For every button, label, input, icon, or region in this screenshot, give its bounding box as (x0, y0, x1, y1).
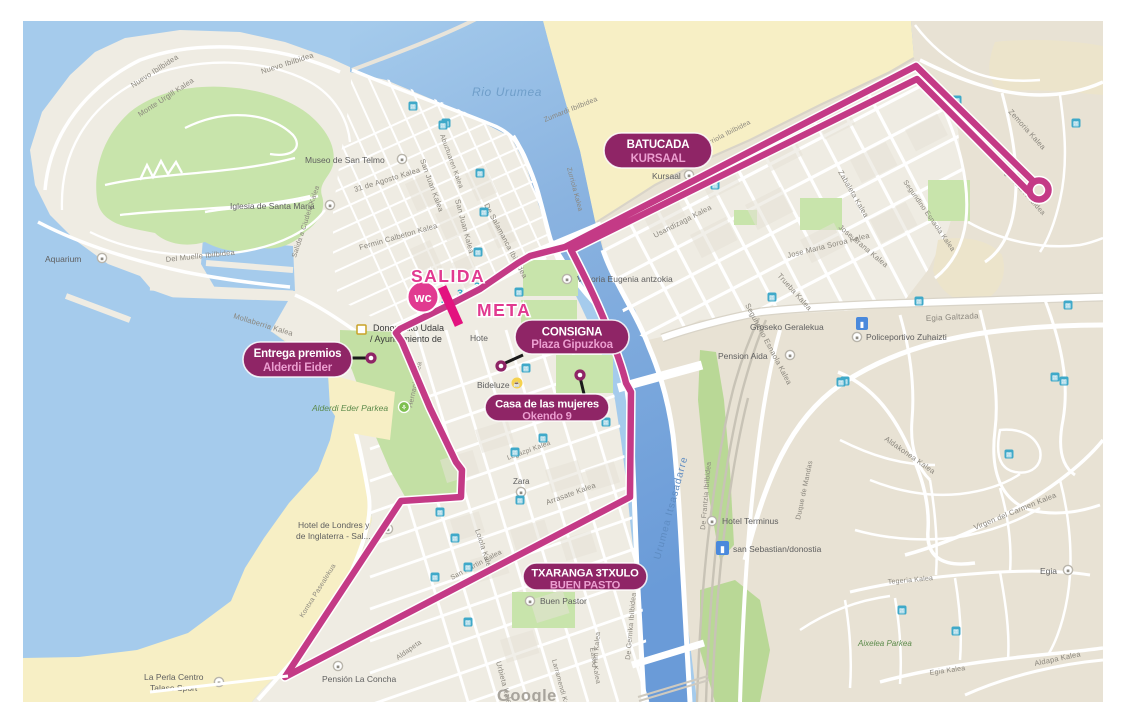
svg-text:■: ■ (855, 335, 858, 341)
svg-text:Egia: Egia (1040, 566, 1057, 576)
svg-text:Policeportivo Zuhaizti: Policeportivo Zuhaizti (866, 332, 947, 342)
svg-text:▩: ▩ (437, 510, 443, 517)
svg-text:▩: ▩ (769, 295, 775, 302)
svg-text:Rio Urumea: Rio Urumea (472, 85, 542, 99)
svg-text:Iglesia de Santa Maria: Iglesia de Santa Maria (230, 201, 315, 211)
svg-text:Bideluze: Bideluze (477, 380, 510, 390)
svg-text:san Sebastian/donostia: san Sebastian/donostia (733, 544, 822, 554)
svg-text:META: META (477, 300, 531, 320)
svg-text:■: ■ (788, 353, 791, 359)
svg-text:▮: ▮ (860, 320, 864, 329)
svg-text:Pension Aida: Pension Aida (718, 351, 768, 361)
svg-text:▩: ▩ (440, 123, 446, 130)
svg-text:☕: ☕ (513, 380, 521, 388)
svg-text:Entrega premios: Entrega premios (254, 348, 342, 360)
svg-text:Kursaal: Kursaal (652, 171, 681, 181)
svg-text:■: ■ (710, 519, 713, 525)
svg-text:▩: ▩ (481, 210, 487, 217)
svg-text:TXARANGA 3TXULO: TXARANGA 3TXULO (531, 568, 639, 580)
svg-text:■: ■ (400, 157, 403, 163)
svg-text:▩: ▩ (916, 299, 922, 306)
svg-text:▩: ▩ (517, 498, 523, 505)
svg-text:▩: ▩ (512, 450, 518, 457)
svg-text:▩: ▩ (1052, 375, 1058, 382)
svg-text:▩: ▩ (465, 565, 471, 572)
svg-text:▩: ▩ (1006, 452, 1012, 459)
svg-text:■: ■ (328, 203, 331, 209)
svg-text:BATUCADA: BATUCADA (627, 139, 690, 151)
svg-text:KURSAAL: KURSAAL (631, 153, 686, 165)
svg-text:▩: ▩ (465, 620, 471, 627)
svg-text:▩: ▩ (603, 420, 609, 427)
svg-text:■: ■ (100, 256, 103, 262)
svg-text:▩: ▩ (953, 629, 959, 636)
svg-text:Hotel Terminus: Hotel Terminus (722, 516, 779, 526)
svg-text:Aixelea Parkea: Aixelea Parkea (857, 639, 912, 648)
svg-text:▩: ▩ (540, 436, 546, 443)
svg-text:▩: ▩ (410, 104, 416, 111)
svg-text:▩: ▩ (432, 575, 438, 582)
svg-text:Aquarium: Aquarium (45, 254, 81, 264)
svg-text:▩: ▩ (1065, 303, 1071, 310)
svg-text:▩: ▩ (516, 290, 522, 297)
svg-text:Hotel de Londres y: Hotel de Londres y (298, 520, 370, 530)
svg-text:Hote: Hote (470, 333, 488, 343)
svg-text:■: ■ (528, 599, 531, 605)
svg-text:▩: ▩ (523, 366, 529, 373)
svg-text:▩: ▩ (477, 171, 483, 178)
svg-text:Alderdi Eder Parkea: Alderdi Eder Parkea (311, 403, 388, 413)
svg-text:Groseko Geralekua: Groseko Geralekua (750, 322, 824, 332)
svg-text:⚘: ⚘ (401, 404, 407, 412)
svg-text:wc: wc (413, 290, 431, 305)
svg-text:Casa de las mujeres: Casa de las mujeres (495, 399, 599, 411)
svg-text:▩: ▩ (838, 380, 844, 387)
svg-text:Museo de San Telmo: Museo de San Telmo (305, 155, 385, 165)
svg-text:▩: ▩ (1073, 121, 1079, 128)
svg-text:BUEN PASTO: BUEN PASTO (550, 580, 621, 592)
svg-text:Alderdi Eider: Alderdi Eider (263, 362, 333, 374)
svg-text:▩: ▩ (452, 536, 458, 543)
svg-text:La Perla Centro: La Perla Centro (144, 672, 204, 682)
svg-text:■: ■ (519, 490, 522, 496)
svg-text:de Inglaterra - Sal...: de Inglaterra - Sal... (296, 531, 371, 541)
svg-text:■: ■ (1066, 568, 1069, 574)
svg-text:▮: ▮ (720, 544, 725, 554)
svg-text:CONSIGNA: CONSIGNA (542, 327, 602, 339)
svg-text:Okendo 9: Okendo 9 (522, 411, 571, 423)
svg-text:Zara: Zara (513, 477, 530, 486)
svg-text:▩: ▩ (899, 608, 905, 615)
svg-text:Pensión La Concha: Pensión La Concha (322, 674, 396, 684)
svg-text:■: ■ (565, 277, 568, 283)
svg-text:■: ■ (336, 664, 339, 670)
svg-text:▩: ▩ (475, 250, 481, 257)
svg-text:Plaza Gipuzkoa: Plaza Gipuzkoa (531, 339, 613, 351)
svg-text:SALIDA: SALIDA (411, 266, 485, 286)
svg-text:Buen Pastor: Buen Pastor (540, 596, 587, 606)
svg-text:▩: ▩ (1061, 379, 1067, 386)
